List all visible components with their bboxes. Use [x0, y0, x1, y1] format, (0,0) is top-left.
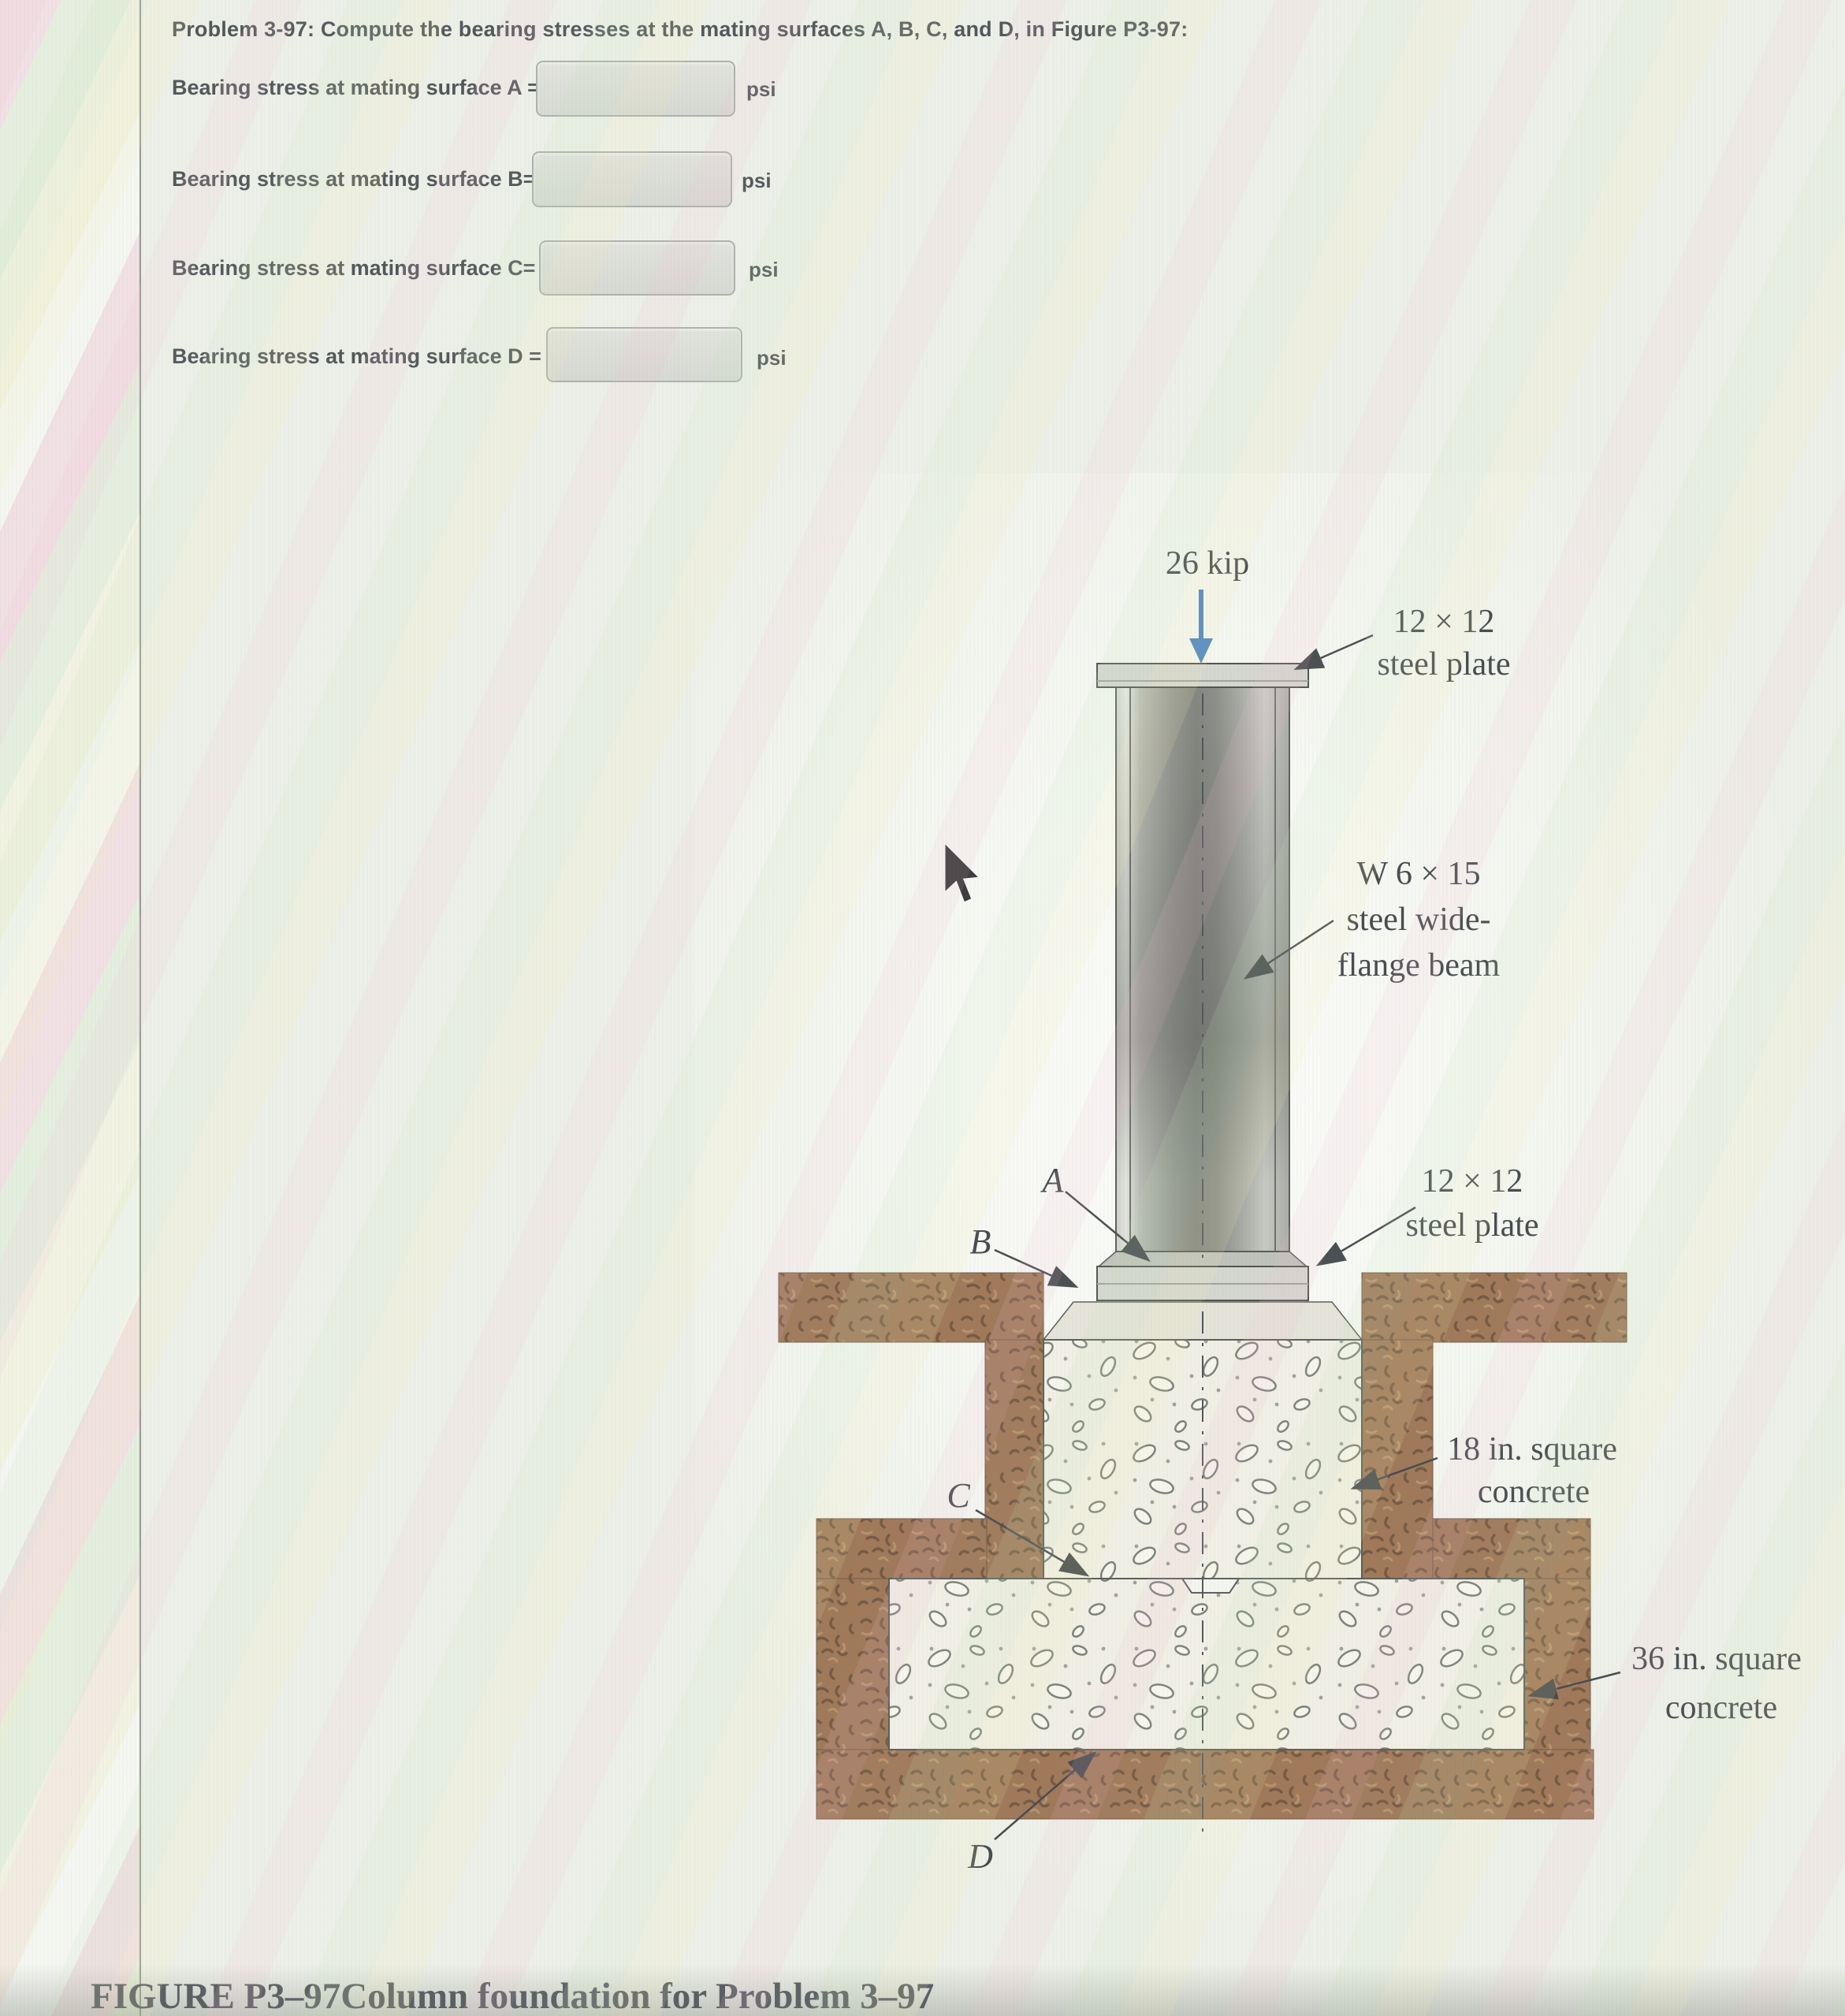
bearing-stress-d-unit: psi [757, 346, 787, 370]
bearing-stress-b-unit: psi [742, 169, 772, 193]
homework-page: Problem 3-97: Compute the bearing stress… [0, 0, 1845, 2016]
figure-caption: FIGURE P3–97Column foundation for Proble… [91, 1975, 934, 2016]
figure-background-glow [694, 473, 1813, 1931]
problem-title: Problem 3-97: Compute the bearing stress… [172, 17, 1401, 42]
bearing-stress-d-label: Bearing stress at mating surface D = [172, 344, 541, 369]
bearing-stress-d-input[interactable] [546, 327, 742, 382]
figure-caption-text: Column foundation for Problem 3–97 [340, 1976, 934, 2016]
bearing-stress-b-label: Bearing stress at mating surface B= [172, 167, 535, 192]
page-left-margin [0, 0, 139, 2016]
bearing-stress-c-label: Bearing stress at mating surface C= [172, 256, 535, 281]
bearing-stress-c-input[interactable] [539, 240, 735, 296]
page-border-line [139, 0, 141, 2016]
figure-caption-label: FIGURE P3–97 [91, 1976, 340, 2016]
bearing-stress-c-unit: psi [749, 258, 779, 282]
bearing-stress-a-unit: psi [746, 77, 776, 102]
bearing-stress-a-input[interactable] [536, 61, 735, 117]
bearing-stress-a-label: Bearing stress at mating surface A = [172, 76, 540, 100]
bearing-stress-b-input[interactable] [532, 151, 732, 207]
